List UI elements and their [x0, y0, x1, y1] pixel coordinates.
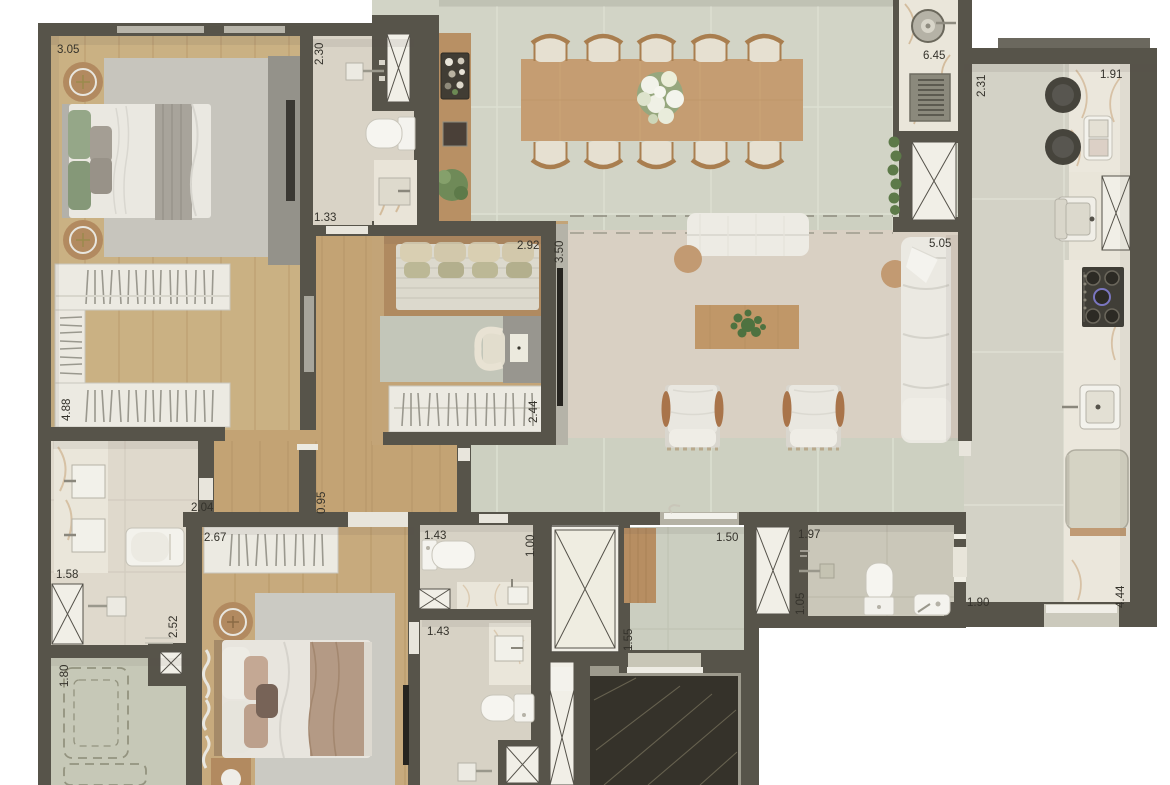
svg-text:1.90: 1.90	[967, 597, 989, 609]
svg-text:4.44: 4.44	[1115, 585, 1127, 608]
svg-text:6.45: 6.45	[923, 50, 945, 62]
svg-text:0.95: 0.95	[316, 492, 328, 514]
svg-text:3.50: 3.50	[554, 241, 566, 263]
svg-text:4.88: 4.88	[61, 399, 73, 421]
svg-text:3.05: 3.05	[57, 44, 79, 56]
svg-text:1.55: 1.55	[623, 629, 635, 651]
svg-text:2.67: 2.67	[204, 532, 226, 544]
svg-text:1.91: 1.91	[1100, 69, 1122, 81]
svg-text:5.05: 5.05	[929, 238, 951, 250]
svg-text:1.00: 1.00	[525, 535, 537, 557]
svg-text:1.43: 1.43	[427, 626, 449, 638]
svg-text:2.31: 2.31	[976, 75, 988, 97]
svg-text:2.04: 2.04	[191, 502, 214, 514]
svg-text:2.92: 2.92	[517, 240, 539, 252]
svg-text:1.43: 1.43	[424, 530, 446, 542]
svg-text:1.80: 1.80	[59, 665, 71, 687]
svg-text:1.50: 1.50	[716, 532, 738, 544]
svg-text:2.30: 2.30	[314, 43, 326, 65]
svg-text:1.58: 1.58	[56, 569, 78, 581]
svg-text:1.05: 1.05	[795, 593, 807, 615]
svg-text:1.33: 1.33	[314, 212, 336, 224]
svg-text:1.97: 1.97	[798, 529, 820, 541]
svg-text:2.44: 2.44	[528, 400, 540, 423]
svg-text:2.52: 2.52	[168, 616, 180, 638]
